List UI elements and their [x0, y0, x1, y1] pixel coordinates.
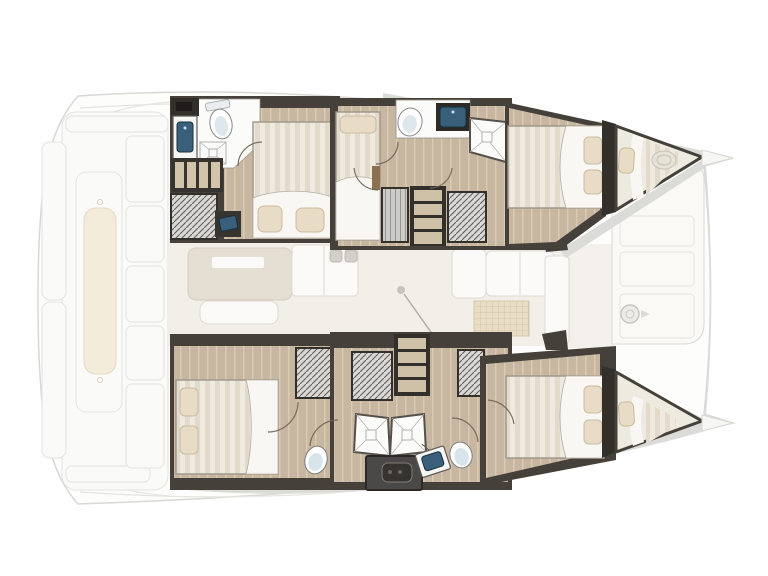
desk-item	[219, 215, 238, 231]
bow-tip-ghost	[702, 415, 733, 431]
side-locker	[126, 206, 164, 262]
steps	[171, 158, 223, 192]
bedside-shelf	[372, 166, 380, 190]
bulkhead	[602, 120, 616, 216]
wardrobe	[171, 194, 217, 239]
shower-icon	[390, 414, 426, 456]
shower-icon	[354, 414, 390, 456]
stairs-companionway	[410, 186, 446, 246]
vanity-item	[176, 102, 192, 111]
transom-locker	[42, 302, 66, 458]
bed-double	[176, 380, 278, 474]
wardrobe	[448, 192, 486, 242]
aft-step	[66, 116, 168, 132]
bed-double	[506, 376, 604, 458]
bench-cushion	[84, 208, 116, 374]
pillow	[618, 148, 635, 174]
lower-bow-cabin	[480, 346, 616, 486]
door-knob	[397, 286, 405, 294]
floor-mat	[474, 301, 529, 336]
forward-walkway	[564, 244, 614, 348]
saloon	[168, 238, 614, 348]
sink-icon	[173, 116, 197, 160]
cabinet-handle	[330, 250, 342, 262]
pillow	[618, 401, 635, 426]
floorplan-canvas	[0, 0, 768, 576]
engine-module	[366, 456, 422, 490]
deck-hatch-icon	[652, 151, 676, 169]
pillow	[584, 170, 602, 194]
bed-double	[508, 126, 604, 208]
side-locker	[126, 326, 164, 380]
stairs-companionway	[394, 334, 430, 396]
pillow	[258, 206, 282, 232]
sink-icon	[436, 103, 470, 131]
pillow	[584, 137, 602, 164]
cabinet-handle	[345, 250, 357, 262]
pillow	[296, 208, 324, 232]
catamaran-floorplan	[0, 0, 768, 576]
saloon-sofa	[200, 301, 278, 324]
transom-locker	[42, 142, 66, 300]
upper-mid-cabin	[330, 98, 512, 250]
side-locker	[126, 266, 164, 322]
wardrobe	[352, 352, 392, 400]
settee	[452, 249, 486, 298]
pillow	[584, 386, 602, 413]
galley-island-top	[212, 257, 264, 268]
side-locker	[126, 136, 164, 202]
pillow	[584, 420, 602, 444]
side-locker	[126, 384, 164, 468]
bed-double	[253, 122, 334, 238]
pillow	[180, 426, 198, 454]
pillow	[180, 388, 198, 416]
bow-tip-ghost	[702, 150, 733, 166]
cabinet-louvered	[382, 188, 408, 242]
bulkhead	[602, 366, 616, 458]
galley-island	[188, 248, 292, 300]
upper-aft-cabin	[170, 96, 340, 243]
